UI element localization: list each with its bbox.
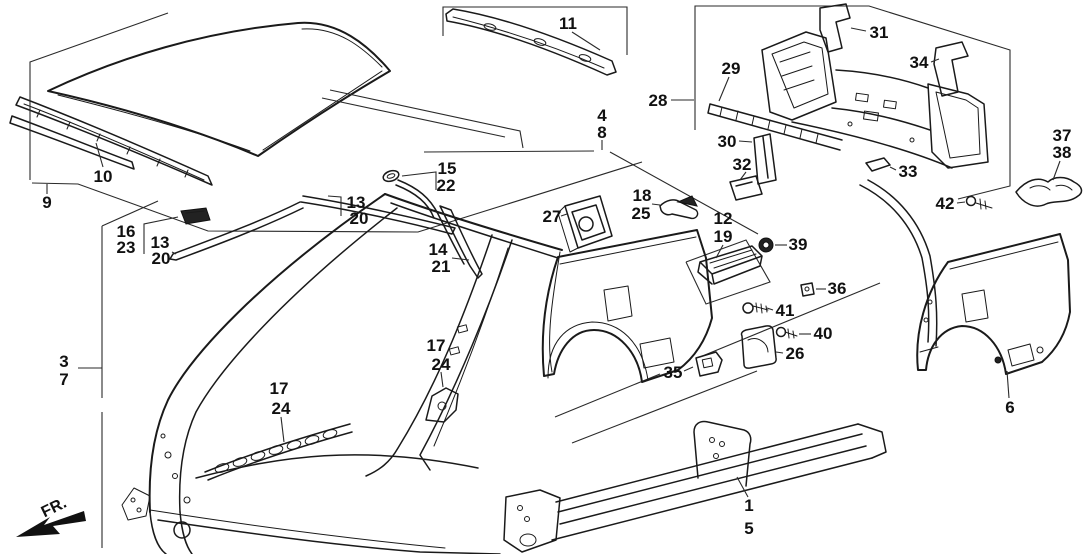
- part-label-pillar-bracket: 24: [432, 355, 451, 374]
- part-label-bolt-40: 40: [814, 324, 833, 343]
- rocker-sill-drawing: [504, 421, 886, 552]
- leader-line-fuel-filler-pocket: [561, 214, 567, 216]
- part-label-pillar-bracket: 17: [427, 336, 446, 355]
- part-label-rear-bracket-left: 31: [870, 23, 889, 42]
- callout-labels: 9101148282930313233343738421623132013201…: [42, 14, 1071, 538]
- leader-line-lock-bracket-35: [684, 367, 693, 371]
- part-label-roof-side-group: 9: [42, 193, 51, 212]
- part-label-grommet-39: 39: [789, 235, 808, 254]
- leader-line-bolt-42: [957, 202, 965, 203]
- rear-roof-rail-drawing: [443, 7, 627, 75]
- part-label-rocker-sill: 1: [744, 496, 753, 515]
- quarter-panel-right-drawing: [860, 180, 1070, 374]
- fr-label: FR.: [39, 495, 70, 522]
- part-label-crossmember-channel: 30: [718, 132, 737, 151]
- fr-direction-indicator: FR.: [16, 495, 86, 537]
- part-label-sill-garnish: 19: [714, 227, 733, 246]
- part-label-roof-molding-front: 20: [152, 249, 171, 268]
- part-label-nut-36: 36: [828, 279, 847, 298]
- leader-line-crossmember-channel: [739, 141, 752, 142]
- group-bracket-lines: [102, 90, 880, 548]
- part-label-fuel-filler-lid: 26: [786, 344, 805, 363]
- part-label-rocker-sill: 5: [744, 519, 753, 538]
- part-label-rear-roof-rail: 11: [559, 14, 577, 33]
- leader-line-rear-roof-rail: [572, 32, 600, 50]
- part-label-fuel-filler-pocket: 27: [543, 207, 562, 226]
- part-label-bolt-42: 42: [936, 194, 955, 213]
- part-label-rear-bracket-right: 34: [910, 53, 929, 72]
- part-label-clip-18-25: 18: [633, 186, 652, 205]
- part-label-drip-molding-upper: 22: [437, 176, 456, 195]
- leader-line-rear-crossmember: [719, 77, 729, 101]
- quarter-panel-left-drawing: [543, 196, 814, 382]
- part-label-molding-clip: 23: [117, 238, 136, 257]
- part-label-rear-panel-group: 28: [649, 91, 668, 110]
- part-label-gutter-bracket: 38: [1053, 143, 1072, 162]
- parts-diagram-page: FR. 910114828293031323334373842162313201…: [0, 0, 1090, 554]
- part-label-rear-panel-clip: 33: [899, 162, 918, 181]
- part-label-crossmember-foot: 32: [733, 155, 752, 174]
- part-label-sill-stiffener: 24: [272, 399, 291, 418]
- leader-line-drip-molding-upper: [402, 172, 436, 190]
- part-label-sill-garnish: 12: [714, 209, 733, 228]
- part-label-sill-stiffener: 17: [270, 379, 289, 398]
- part-label-side-panel-group: 7: [59, 370, 68, 389]
- part-label-side-panel-group: 3: [59, 352, 68, 371]
- part-label-quarter-extension: 6: [1005, 398, 1014, 417]
- leader-line-roof-molding-rear: [328, 196, 341, 216]
- leader-line-rear-panel-clip: [890, 167, 896, 170]
- part-label-bolt-41: 41: [776, 301, 795, 320]
- leader-line-sill-stiffener: [281, 417, 284, 442]
- part-label-front-roof-rail: 10: [94, 167, 113, 186]
- part-label-rear-crossmember: 29: [722, 59, 741, 78]
- leader-line-quarter-extension: [1007, 371, 1009, 398]
- leader-line-rear-bracket-left: [851, 28, 866, 31]
- part-label-clip-18-25: 25: [632, 204, 651, 223]
- parts-diagram: FR. 910114828293031323334373842162313201…: [0, 0, 1090, 554]
- leader-line-pillar-bracket: [441, 372, 443, 387]
- part-label-roof-molding-rear: 20: [350, 209, 369, 228]
- leader-line-fuel-filler-lid: [776, 352, 783, 353]
- part-label-lock-bracket-35: 35: [664, 363, 683, 382]
- part-label-outer-panel-group: 8: [597, 123, 606, 142]
- leader-line-clip-18-25: [652, 204, 660, 205]
- part-label-drip-molding-lower: 21: [432, 257, 451, 276]
